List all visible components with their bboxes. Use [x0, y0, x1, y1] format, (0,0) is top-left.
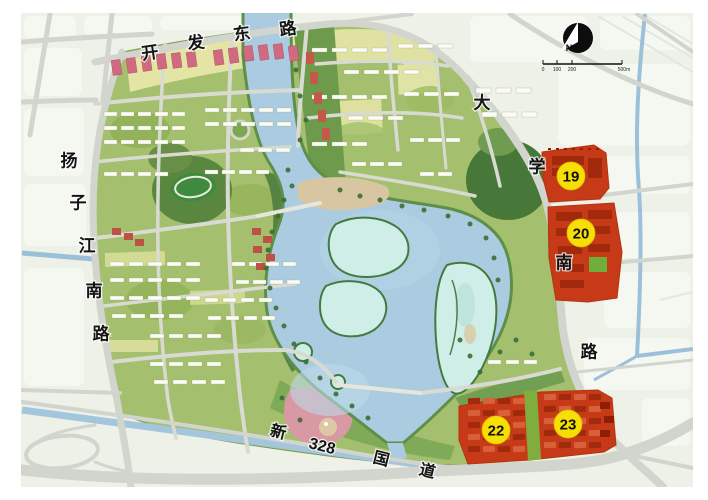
building — [155, 126, 168, 130]
building — [192, 380, 206, 384]
building — [438, 172, 452, 176]
building — [352, 162, 366, 166]
building — [236, 280, 249, 284]
building — [148, 296, 162, 300]
building — [121, 140, 134, 144]
building-red — [112, 228, 121, 235]
tree — [270, 230, 275, 235]
building — [241, 122, 255, 126]
building-red — [135, 239, 144, 246]
parcel-22-building — [468, 410, 480, 417]
building — [241, 108, 255, 112]
parcel-22-building — [513, 410, 525, 417]
building — [370, 162, 384, 166]
building — [207, 362, 221, 366]
building — [150, 334, 164, 338]
parcel-22-building — [483, 446, 495, 453]
building — [244, 316, 257, 320]
building — [502, 112, 517, 117]
parcel-23-building — [600, 430, 610, 437]
tree — [514, 338, 519, 343]
parcel-23-building — [604, 416, 614, 423]
building-pink — [243, 45, 254, 61]
building — [516, 88, 531, 93]
parcel-19-mark — [580, 148, 583, 150]
building — [167, 296, 181, 300]
road-label-char-top-0: 开 — [140, 42, 159, 63]
parcel-22-building — [498, 398, 510, 405]
tree — [276, 214, 281, 219]
tree — [484, 236, 489, 241]
building — [240, 148, 254, 152]
building — [207, 334, 221, 338]
tree — [492, 256, 497, 261]
tree — [286, 168, 291, 173]
building — [404, 92, 419, 96]
building — [121, 126, 134, 130]
tree — [468, 354, 473, 359]
building-pink — [228, 47, 239, 63]
tree — [446, 214, 451, 219]
parcel-23-building — [544, 394, 556, 400]
parcel-22-building — [513, 398, 525, 405]
tree — [496, 278, 501, 283]
building — [404, 70, 419, 74]
tree — [282, 198, 287, 203]
tree — [334, 392, 339, 397]
building — [524, 360, 537, 364]
building — [169, 362, 183, 366]
building — [259, 108, 273, 112]
building-pink — [273, 43, 284, 59]
building — [398, 44, 413, 48]
tree — [268, 286, 273, 291]
tree — [298, 418, 303, 423]
road-label-char-right-2: 南 — [556, 252, 573, 272]
building — [276, 148, 290, 152]
tree — [458, 338, 463, 343]
road-label-char-left-0: 扬 — [61, 150, 78, 170]
building — [232, 262, 245, 266]
tree — [298, 138, 303, 143]
building — [211, 380, 225, 384]
tree — [530, 352, 535, 357]
parcel-22-building — [513, 434, 525, 441]
building — [258, 148, 272, 152]
parcel-marker-label-23: 23 — [560, 417, 577, 434]
building — [352, 95, 367, 99]
parcel-19-mark — [572, 148, 575, 150]
building — [150, 362, 164, 366]
building — [372, 95, 387, 99]
road-label-char-top-2: 东 — [232, 22, 252, 44]
building — [287, 280, 300, 284]
parcel-20-green — [589, 257, 607, 272]
tree — [400, 204, 405, 209]
tree — [294, 68, 299, 73]
masterplan-map: 19202223 开发东路扬子江南路大学南路新328国道 N 010020050… — [0, 0, 708, 500]
building — [223, 108, 237, 112]
tree — [318, 376, 323, 381]
parcel-23-building — [589, 406, 601, 412]
building — [226, 316, 239, 320]
compass-label: N — [566, 43, 573, 53]
scale-label-0: 0 — [542, 67, 545, 73]
building — [364, 70, 379, 74]
parcel-23-building — [589, 430, 601, 436]
building-pink — [171, 52, 182, 68]
building-red — [318, 110, 326, 122]
parcel-23-building — [544, 430, 556, 436]
building — [148, 278, 162, 282]
tree — [304, 118, 309, 123]
tree — [282, 324, 287, 329]
building — [131, 314, 145, 318]
building — [418, 44, 433, 48]
building — [129, 262, 143, 266]
building — [104, 126, 117, 130]
tree — [290, 184, 295, 189]
tree — [366, 416, 371, 421]
road-label-char-left-3: 南 — [86, 280, 103, 300]
map-canvas: 19202223 开发东路扬子江南路大学南路新328国道 N 010020050… — [0, 0, 708, 500]
building — [420, 172, 434, 176]
tree — [280, 396, 285, 401]
building — [266, 262, 279, 266]
building — [173, 380, 187, 384]
building — [205, 122, 219, 126]
tree — [350, 404, 355, 409]
parcel-22-building — [468, 398, 480, 405]
building — [239, 170, 252, 174]
building — [372, 48, 387, 52]
parcel-23-building — [600, 402, 610, 409]
building — [205, 298, 218, 302]
parcel-22-building — [498, 410, 510, 417]
parcel-19-mark — [588, 148, 591, 150]
tree — [266, 248, 271, 253]
building — [167, 262, 181, 266]
building — [277, 122, 291, 126]
parcel-22-building — [513, 446, 525, 453]
parcel-22-building — [468, 446, 480, 453]
tree — [304, 360, 309, 365]
tree — [378, 198, 383, 203]
building — [208, 316, 221, 320]
building — [169, 314, 183, 318]
scale-label-2: 200 — [568, 67, 577, 73]
building-pink — [111, 59, 122, 75]
building-red — [306, 52, 314, 64]
building — [138, 140, 151, 144]
parcel-19-mark — [556, 148, 559, 150]
parcel-22-building — [468, 434, 480, 441]
building-red — [322, 128, 330, 140]
building — [110, 278, 124, 282]
building — [222, 170, 235, 174]
parcel-22-building — [483, 410, 495, 417]
building — [167, 278, 181, 282]
building — [129, 278, 143, 282]
building — [138, 112, 151, 116]
building — [150, 314, 164, 318]
building — [482, 112, 497, 117]
building — [312, 48, 327, 52]
building — [488, 360, 501, 364]
building — [188, 362, 202, 366]
building — [476, 88, 491, 93]
parcel-22-building — [483, 398, 495, 405]
building — [110, 296, 124, 300]
building — [169, 334, 183, 338]
parcel-marker-label-19: 19 — [563, 169, 580, 186]
building — [332, 95, 347, 99]
building — [104, 140, 117, 144]
building — [262, 316, 275, 320]
building — [104, 112, 117, 116]
tree — [478, 370, 483, 375]
parcel-19-mark — [564, 148, 567, 150]
road-label-char-left-1: 子 — [70, 193, 87, 212]
building — [104, 172, 117, 176]
parcel-23-building — [574, 406, 586, 412]
building — [388, 162, 402, 166]
building — [348, 116, 363, 120]
building — [410, 138, 424, 142]
building-red — [314, 92, 322, 104]
parcel-20-building — [588, 210, 612, 219]
building — [253, 280, 266, 284]
parcel-22-building — [513, 422, 525, 429]
scale-label-3: 500m — [618, 67, 631, 73]
building — [148, 262, 162, 266]
building — [368, 116, 383, 120]
building — [155, 112, 168, 116]
road-label-char-right-3: 路 — [581, 341, 599, 361]
building-red — [252, 228, 261, 235]
building — [428, 138, 442, 142]
parcel-22-building — [468, 422, 480, 429]
building — [121, 172, 134, 176]
building — [444, 92, 459, 96]
building — [384, 70, 399, 74]
building — [506, 360, 519, 364]
building-pink — [126, 57, 137, 73]
building-red — [124, 233, 133, 240]
building-pink — [258, 44, 269, 60]
building — [332, 142, 347, 146]
parcel-19-mark — [596, 148, 599, 150]
tree — [338, 188, 343, 193]
building — [438, 44, 453, 48]
parcel-marker-label-22: 22 — [488, 423, 505, 440]
building — [223, 298, 236, 302]
tree — [422, 208, 427, 213]
building — [186, 262, 200, 266]
tree — [292, 342, 297, 347]
building-red — [253, 246, 262, 253]
building — [155, 140, 168, 144]
building — [110, 262, 124, 266]
building-red — [256, 263, 265, 270]
building — [172, 112, 185, 116]
building — [138, 172, 151, 176]
building-pink — [213, 49, 224, 65]
building — [283, 262, 296, 266]
tree — [468, 222, 473, 227]
parcel-23-building — [589, 418, 601, 424]
parcel-23-building — [574, 394, 586, 400]
parcel-19-building — [588, 158, 602, 178]
tree — [274, 306, 279, 311]
building — [205, 170, 218, 174]
building — [312, 142, 327, 146]
building — [138, 126, 151, 130]
parcel-23-building — [559, 394, 571, 400]
parcel-marker-label-20: 20 — [573, 226, 590, 243]
road-label-char-left-4: 路 — [93, 323, 111, 343]
road-label-char-right-0: 大 — [474, 92, 491, 112]
building — [352, 48, 367, 52]
building-pink — [288, 45, 299, 61]
building-pink — [186, 51, 197, 67]
building-red — [310, 72, 318, 84]
building — [259, 298, 272, 302]
building — [186, 278, 200, 282]
building-red — [263, 236, 272, 243]
building — [223, 122, 237, 126]
parcel-23-building — [544, 406, 556, 412]
parcel-22-building — [498, 446, 510, 453]
building — [446, 138, 460, 142]
tree — [264, 266, 269, 271]
parcel-23-building — [589, 442, 601, 448]
building — [256, 170, 269, 174]
parcel-23-building — [589, 394, 601, 400]
building — [277, 108, 291, 112]
building — [522, 112, 537, 117]
building — [388, 116, 403, 120]
building — [332, 48, 347, 52]
building — [241, 298, 254, 302]
building — [155, 172, 168, 176]
building — [172, 126, 185, 130]
tree — [498, 350, 503, 355]
parcel-20-building — [560, 280, 584, 288]
parcel-23-building — [574, 442, 586, 448]
building — [172, 140, 185, 144]
building — [186, 296, 200, 300]
parcel-20-building — [588, 244, 610, 252]
road-label-char-left-2: 江 — [79, 236, 96, 255]
building — [188, 334, 202, 338]
building — [121, 112, 134, 116]
building — [496, 88, 511, 93]
building — [112, 314, 126, 318]
building — [129, 296, 143, 300]
building-red — [266, 254, 275, 261]
tree — [298, 94, 303, 99]
building — [259, 122, 273, 126]
building — [344, 70, 359, 74]
parcel-23-building — [559, 442, 571, 448]
building — [205, 108, 219, 112]
building — [154, 380, 168, 384]
building — [352, 142, 367, 146]
parcel-19-mark — [548, 148, 551, 150]
building — [270, 280, 283, 284]
scale-label-1: 100 — [553, 67, 562, 73]
parcel-23-building — [544, 442, 556, 448]
road-label-char-right-1: 学 — [529, 156, 546, 176]
building — [424, 92, 439, 96]
tree — [358, 194, 363, 199]
